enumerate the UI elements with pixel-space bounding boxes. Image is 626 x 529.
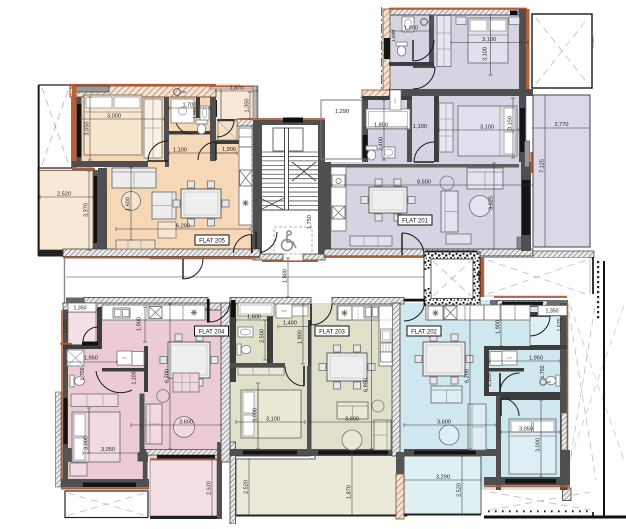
svg-text:2,770: 2,770	[555, 122, 569, 128]
svg-text:1,290: 1,290	[335, 109, 349, 115]
svg-text:1,950: 1,950	[529, 356, 543, 362]
svg-text:FLAT 202: FLAT 202	[411, 329, 437, 335]
svg-text:1,950: 1,950	[84, 356, 98, 362]
svg-text:1,750: 1,750	[307, 215, 313, 229]
svg-text:1,700: 1,700	[183, 102, 197, 108]
svg-text:3,100: 3,100	[480, 124, 494, 130]
svg-text:1,100: 1,100	[487, 373, 493, 387]
svg-text:wm: wm	[281, 309, 286, 313]
svg-text:6,200: 6,200	[465, 369, 471, 383]
svg-text:1,600: 1,600	[391, 30, 397, 42]
svg-text:3,600: 3,600	[437, 419, 451, 425]
svg-text:FLAT 203: FLAT 203	[319, 329, 345, 335]
svg-text:1,800: 1,800	[283, 269, 289, 283]
svg-text:1,900: 1,900	[222, 147, 236, 153]
svg-text:3,050: 3,050	[84, 122, 90, 136]
svg-text:3,100: 3,100	[482, 37, 496, 43]
svg-text:1,700: 1,700	[80, 367, 86, 380]
svg-text:1,900: 1,900	[298, 330, 304, 344]
svg-text:1,100: 1,100	[413, 124, 427, 130]
svg-text:FLAT 201: FLAT 201	[402, 218, 428, 224]
svg-text:1,700: 1,700	[540, 365, 546, 378]
svg-text:2,520: 2,520	[207, 481, 213, 495]
svg-text:2,520: 2,520	[457, 483, 463, 497]
svg-text:1,900: 1,900	[496, 320, 502, 334]
svg-text:1,800: 1,800	[374, 122, 388, 128]
svg-text:8,500: 8,500	[417, 179, 431, 185]
svg-text:6,200: 6,200	[165, 369, 171, 383]
svg-text:1,670: 1,670	[557, 318, 563, 331]
svg-text:1,800: 1,800	[404, 25, 418, 31]
svg-text:3,000: 3,000	[536, 438, 542, 452]
svg-text:1,670: 1,670	[63, 320, 69, 333]
svg-text:2,520: 2,520	[244, 480, 250, 494]
svg-text:1,870: 1,870	[347, 485, 353, 499]
svg-text:1,100: 1,100	[173, 147, 187, 153]
svg-text:1,400: 1,400	[283, 321, 297, 327]
svg-text:1,600: 1,600	[126, 197, 132, 211]
svg-text:3,050: 3,050	[519, 427, 533, 433]
svg-text:3,525: 3,525	[489, 196, 495, 210]
svg-text:1,350: 1,350	[546, 309, 559, 315]
svg-text:+4,0967: +4,0967	[591, 35, 595, 48]
svg-text:FLAT 204: FLAT 204	[199, 329, 225, 335]
svg-text:3,000: 3,000	[107, 113, 121, 119]
svg-text:3,000: 3,000	[253, 408, 259, 422]
svg-text:1,350: 1,350	[74, 306, 87, 312]
svg-text:3,100: 3,100	[266, 416, 280, 422]
svg-text:wm: wm	[507, 356, 512, 360]
svg-text:3,150: 3,150	[508, 116, 514, 130]
svg-text:wm: wm	[393, 98, 397, 103]
svg-text:2,400: 2,400	[379, 137, 385, 151]
svg-text:3,290: 3,290	[436, 475, 450, 481]
svg-text:1,900: 1,900	[137, 317, 143, 331]
svg-text:2,500: 2,500	[260, 329, 266, 343]
svg-text:6,200: 6,200	[176, 223, 190, 229]
svg-text:7,125: 7,125	[540, 159, 546, 173]
svg-text:3,370: 3,370	[83, 203, 89, 217]
svg-text:3,100: 3,100	[483, 47, 489, 61]
svg-text:2,520: 2,520	[57, 191, 71, 197]
svg-text:1,870: 1,870	[230, 85, 244, 91]
svg-text:3,600: 3,600	[345, 416, 359, 422]
svg-text:3,600: 3,600	[179, 419, 193, 425]
svg-text:1,950: 1,950	[192, 107, 197, 119]
svg-text:1,100: 1,100	[132, 371, 138, 384]
svg-text:FLAT 205: FLAT 205	[199, 238, 225, 244]
svg-text:6,850: 6,850	[364, 378, 370, 392]
svg-text:1,600: 1,600	[247, 315, 261, 321]
svg-text:wm: wm	[122, 356, 127, 360]
svg-text:3,050: 3,050	[101, 447, 115, 453]
svg-text:3,000: 3,000	[84, 436, 90, 450]
svg-text:1,350: 1,350	[244, 99, 250, 113]
